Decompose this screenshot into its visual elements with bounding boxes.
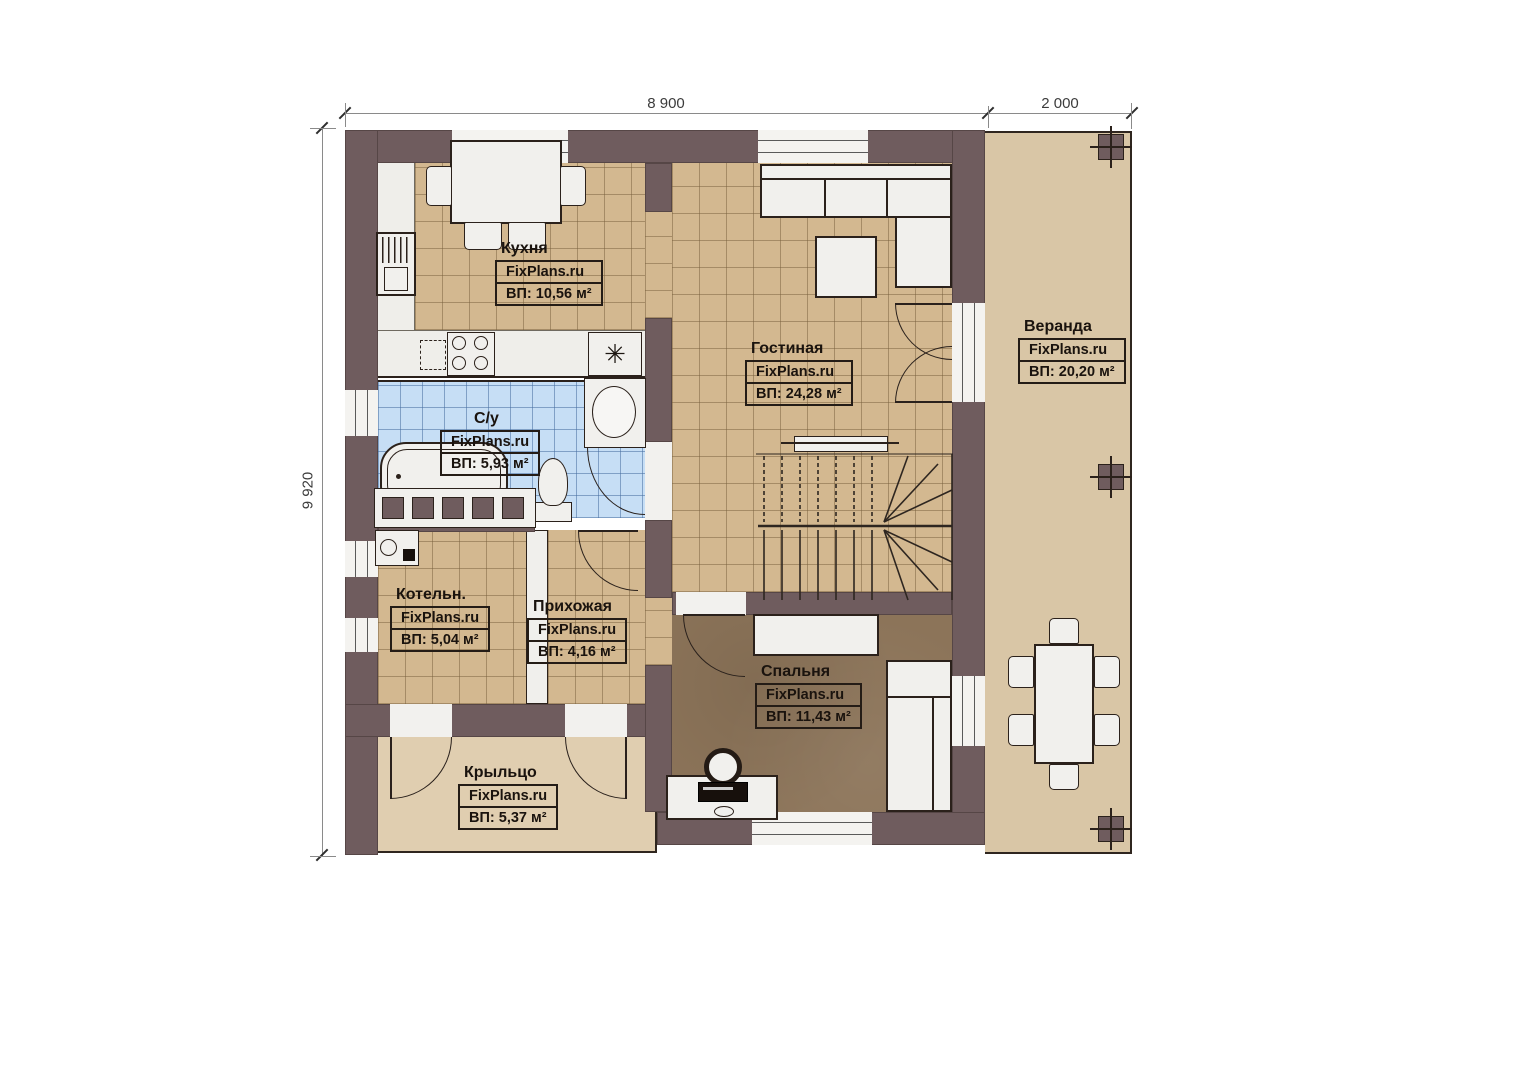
bed-blanket-line [932,696,934,810]
bed [886,660,952,812]
hallway-living-passage [645,598,672,665]
dim-ext-line [310,128,336,129]
room-area: ВП: 4,16 м² [529,640,625,662]
coffee-table [815,236,877,298]
cabinet-door [472,497,494,519]
bed-pillow-line [888,696,950,698]
room-area: ВП: 24,28 м² [747,382,851,404]
watermark: FixPlans.ru [460,786,556,806]
watermark: FixPlans.ru [392,608,488,628]
post-axis-line [1090,146,1132,148]
toilet-bowl [538,458,568,506]
room-label-kitchen: Кухня FixPlans.ru ВП: 10,56 м² [495,240,603,306]
dim-label-veranda-width: 2 000 [1006,95,1114,112]
watermark: FixPlans.ru [497,262,601,282]
living-room-window [758,130,868,163]
laptop-screen-line [703,787,733,790]
entry-door-opening [565,704,627,737]
sofa-back-line [762,178,950,180]
veranda-chair [1049,764,1079,790]
floor-plan-canvas: 8 900 2 000 9 920 [0,0,1528,1080]
room-info-box: FixPlans.ru ВП: 24,28 м² [745,360,853,406]
veranda-chair [1094,714,1120,746]
bedroom-door-leaf [683,614,745,616]
cabinet-door [502,497,524,519]
watermark: FixPlans.ru [747,362,851,382]
french-door-leaf-bottom [895,401,952,403]
wardrobe [753,614,879,656]
wall-kitchen-living-stub [645,163,672,212]
bathtub-drain [396,474,401,479]
room-name: Прихожая [533,598,627,616]
watermark: FixPlans.ru [529,620,625,640]
fridge-inner [384,267,408,291]
room-name: Крыльцо [464,764,558,782]
room-name: Котельн. [396,586,490,604]
bathroom-window [345,390,378,436]
laptop [698,782,748,802]
veranda-post [1098,464,1124,490]
room-label-porch: Крыльцо FixPlans.ru ВП: 5,37 м² [458,764,558,830]
room-name: Гостиная [751,340,853,358]
dim-line-left [322,128,323,857]
bedroom-door-opening [676,592,746,615]
hallway-door-leaf [578,530,638,532]
boiler-exit-door-leaf [390,737,392,799]
room-label-veranda: Веранда FixPlans.ru ВП: 20,20 м² [1018,318,1126,384]
cabinet-door [442,497,464,519]
dim-label-house-width: 8 900 [600,95,732,112]
burner [474,356,488,370]
washing-machine-door [380,539,397,556]
burner [474,336,488,350]
room-area: ВП: 20,20 м² [1020,360,1124,382]
post-axis-line [1090,476,1132,478]
fridge-vent-lines [382,237,410,263]
veranda-post [1098,816,1124,842]
dim-label-house-depth: 9 920 [300,459,317,523]
bathroom-door-opening [645,442,672,520]
staircase [756,450,954,602]
desk-chair [704,748,742,786]
sofa-cushion-line [886,178,888,218]
wall-top [345,130,985,163]
watermark: FixPlans.ru [442,432,538,452]
room-label-bathroom: С/у FixPlans.ru ВП: 5,93 м² [440,410,540,476]
washbasin [592,386,636,438]
bedroom-veranda-window [952,676,985,746]
room-label-hallway: Прихожая FixPlans.ru ВП: 4,16 м² [527,598,627,664]
room-info-box: FixPlans.ru ВП: 20,20 м² [1018,338,1126,384]
veranda-chair [1049,618,1079,644]
stove [447,332,495,376]
boiler-window-1 [345,541,378,577]
room-name: Кухня [501,240,603,258]
post-axis-line [1090,828,1132,830]
kitchen-chair [560,166,586,206]
washbasin-counter [584,378,646,448]
cabinet-door [412,497,434,519]
wall-bathroom-right [645,318,672,442]
veranda-chair [1008,714,1034,746]
washing-machine [375,530,419,566]
kitchen-table [450,140,562,224]
room-info-box: FixPlans.ru ВП: 5,37 м² [458,784,558,830]
cabinet-door [382,497,404,519]
room-info-box: FixPlans.ru ВП: 10,56 м² [495,260,603,306]
room-area: ВП: 5,37 м² [460,806,556,828]
dim-line-top [345,113,1132,114]
vanity-cabinets [374,488,536,528]
veranda-chair [1094,656,1120,688]
room-info-box: FixPlans.ru ВП: 5,04 м² [390,606,490,652]
radiator-line [781,442,899,444]
room-label-boiler: Котельн. FixPlans.ru ВП: 5,04 м² [390,586,490,652]
dim-ext-line [1131,103,1132,129]
room-info-box: FixPlans.ru ВП: 5,93 м² [440,430,540,476]
dim-ext-line [310,856,336,857]
boiler-exit-opening [390,704,452,737]
sofa-cushion-line [824,178,826,218]
kitchen-living-passage [645,212,672,318]
room-name: С/у [474,410,540,428]
room-label-living: Гостиная FixPlans.ru ВП: 24,28 м² [745,340,853,406]
room-label-bedroom: Спальня FixPlans.ru ВП: 11,43 м² [755,663,862,729]
veranda-post [1098,134,1124,160]
sofa [760,164,952,218]
boiler-window-2 [345,618,378,652]
room-area: ВП: 5,93 м² [442,452,538,474]
dishwasher-dashed [420,340,446,370]
room-info-box: FixPlans.ru ВП: 4,16 м² [527,618,627,664]
sofa-chaise [895,216,952,288]
wall-hallway-right [645,520,672,598]
kitchen-sink: ✳ [588,332,642,376]
room-area: ВП: 5,04 м² [392,628,488,650]
watermark: FixPlans.ru [1020,340,1124,360]
kitchen-chair [426,166,452,206]
room-area: ВП: 10,56 м² [497,282,601,304]
room-info-box: FixPlans.ru ВП: 11,43 м² [755,683,862,729]
living-veranda-door-opening [952,303,985,402]
dim-ext-line [345,103,346,127]
burner [452,336,466,350]
french-door-leaf-top [895,303,952,305]
fridge [376,232,416,296]
veranda-dining-table [1034,644,1094,764]
mouse [714,806,734,817]
room-area: ВП: 11,43 м² [757,705,860,727]
dim-ext-line [988,106,989,128]
room-name: Спальня [761,663,862,681]
watermark: FixPlans.ru [757,685,860,705]
veranda-chair [1008,656,1034,688]
burner [452,356,466,370]
entry-door-leaf [625,737,627,799]
washing-machine-panel [403,549,415,561]
room-name: Веранда [1024,318,1126,336]
